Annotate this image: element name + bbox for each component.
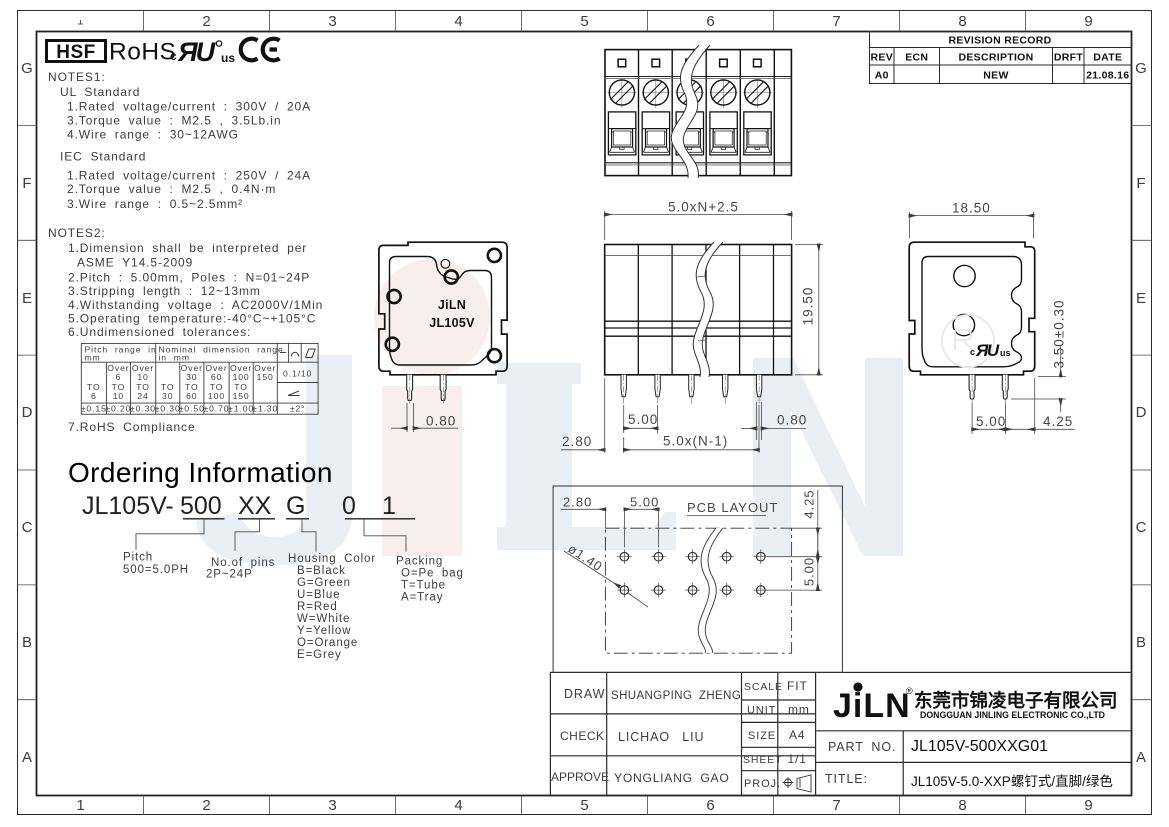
svg-text:±0.30: ±0.30 bbox=[130, 404, 156, 414]
svg-text:6: 6 bbox=[706, 13, 714, 30]
svg-text:DESCRIPTION: DESCRIPTION bbox=[958, 52, 1033, 64]
svg-text:RoHS: RoHS bbox=[109, 39, 176, 66]
svg-text:C: C bbox=[1136, 519, 1147, 536]
svg-text:8: 8 bbox=[958, 797, 966, 814]
svg-text:±2°: ±2° bbox=[290, 404, 306, 414]
svg-text:5.Operating temperature:-40°C~: 5.Operating temperature:-40°C~+105°C bbox=[68, 312, 316, 326]
svg-text:1.Rated voltage/current : 300V: 1.Rated voltage/current : 300V / 20A bbox=[67, 100, 311, 114]
svg-text:5.00: 5.00 bbox=[976, 414, 1006, 429]
svg-text:E=Grey: E=Grey bbox=[297, 649, 342, 661]
svg-text:4: 4 bbox=[454, 797, 462, 814]
svg-text:E: E bbox=[22, 290, 32, 307]
svg-text:TITLE:: TITLE: bbox=[825, 772, 868, 786]
svg-text:2.80: 2.80 bbox=[562, 434, 592, 449]
svg-text:2: 2 bbox=[202, 13, 210, 30]
svg-text:JL105V-: JL105V- bbox=[82, 492, 174, 520]
svg-text:DRFT: DRFT bbox=[1054, 52, 1083, 64]
svg-text:5.00: 5.00 bbox=[628, 412, 658, 427]
svg-text:E: E bbox=[1136, 290, 1146, 307]
svg-text:c: c bbox=[170, 49, 177, 63]
svg-text:6: 6 bbox=[91, 391, 97, 401]
svg-text:mm: mm bbox=[85, 353, 101, 363]
svg-text:7.RoHS Compliance: 7.RoHS Compliance bbox=[68, 420, 196, 434]
svg-text:60: 60 bbox=[211, 372, 222, 382]
svg-text:5.00: 5.00 bbox=[630, 495, 659, 510]
svg-text:FIT: FIT bbox=[787, 679, 808, 693]
svg-text:0.80: 0.80 bbox=[426, 414, 456, 429]
svg-text:REV: REV bbox=[871, 52, 894, 64]
svg-text:9: 9 bbox=[1084, 797, 1092, 814]
svg-text:1: 1 bbox=[76, 797, 84, 814]
svg-text:Ordering Information: Ordering Information bbox=[68, 457, 333, 488]
svg-text:JiLN: JiLN bbox=[438, 298, 466, 312]
svg-text:UNIT: UNIT bbox=[747, 705, 776, 717]
svg-text:UL Standard: UL Standard bbox=[60, 85, 140, 99]
svg-text:0.1/10: 0.1/10 bbox=[283, 369, 312, 379]
svg-text:3.50±0.30: 3.50±0.30 bbox=[1052, 300, 1067, 369]
svg-text:O=Pe bag: O=Pe bag bbox=[401, 568, 464, 580]
svg-text:HSF: HSF bbox=[56, 42, 96, 63]
svg-text:SHUANGPING ZHENG: SHUANGPING ZHENG bbox=[611, 690, 741, 702]
svg-text:1.Rated voltage/current : 250V: 1.Rated voltage/current : 250V / 24A bbox=[67, 169, 311, 183]
svg-text:LICHAO LIU: LICHAO LIU bbox=[618, 730, 704, 744]
svg-text:G: G bbox=[286, 492, 305, 520]
svg-text:SHEET: SHEET bbox=[743, 754, 783, 766]
svg-text:NOTES1:: NOTES1: bbox=[48, 70, 106, 84]
svg-text:A4: A4 bbox=[789, 728, 805, 742]
svg-text:G: G bbox=[1135, 60, 1147, 77]
svg-text:D: D bbox=[1136, 404, 1147, 421]
svg-text:5.0x(N-1): 5.0x(N-1) bbox=[663, 434, 728, 449]
svg-text:No.of pins: No.of pins bbox=[211, 557, 275, 569]
svg-text:mm: mm bbox=[788, 703, 810, 717]
svg-text:in mm: in mm bbox=[159, 353, 190, 363]
svg-text:3.Wire range : 0.5~2.5mm²: 3.Wire range : 0.5~2.5mm² bbox=[67, 197, 243, 211]
svg-text:30: 30 bbox=[162, 391, 173, 401]
svg-text:0: 0 bbox=[342, 492, 356, 520]
svg-text:D: D bbox=[22, 404, 33, 421]
svg-text:2.Torque value : M2.5 , 0.4N·m: 2.Torque value : M2.5 , 0.4N·m bbox=[67, 182, 276, 196]
svg-text:W=White: W=White bbox=[297, 613, 350, 625]
svg-text:PROJ.: PROJ. bbox=[744, 778, 781, 790]
svg-text:JL105V: JL105V bbox=[429, 316, 475, 330]
svg-text:500=5.0PH: 500=5.0PH bbox=[123, 564, 189, 576]
svg-text:±0.50: ±0.50 bbox=[179, 404, 205, 414]
svg-text:B: B bbox=[1136, 634, 1146, 651]
svg-text:1: 1 bbox=[382, 492, 396, 520]
svg-text:8: 8 bbox=[958, 13, 966, 30]
svg-text:c: c bbox=[970, 347, 975, 357]
svg-text:T=Tube: T=Tube bbox=[401, 580, 446, 592]
svg-text:60: 60 bbox=[186, 391, 197, 401]
svg-text:DONGGUAN JINLING ELECTRONIC CO: DONGGUAN JINLING ELECTRONIC CO.,LTD bbox=[920, 710, 1105, 720]
svg-text:±0.20: ±0.20 bbox=[105, 404, 131, 414]
svg-text:5: 5 bbox=[580, 797, 588, 814]
svg-text:10: 10 bbox=[113, 391, 124, 401]
svg-text:4.25: 4.25 bbox=[802, 489, 817, 518]
svg-text:东莞市锦凌电子有限公司: 东莞市锦凌电子有限公司 bbox=[914, 690, 1118, 711]
svg-text:A0: A0 bbox=[875, 70, 889, 82]
svg-text:R=Red: R=Red bbox=[297, 601, 338, 613]
svg-text:ЯU: ЯU bbox=[177, 37, 217, 67]
svg-text:19.50: 19.50 bbox=[801, 287, 816, 326]
svg-text:5: 5 bbox=[580, 13, 588, 30]
svg-text:1/1: 1/1 bbox=[788, 752, 807, 766]
svg-text:F: F bbox=[1136, 175, 1145, 192]
svg-text:±1.00: ±1.00 bbox=[228, 404, 254, 414]
svg-text:Y=Yellow: Y=Yellow bbox=[297, 625, 351, 637]
svg-text:±0.30: ±0.30 bbox=[155, 404, 181, 414]
svg-text:NEW: NEW bbox=[983, 70, 1008, 82]
svg-text:3: 3 bbox=[328, 797, 336, 814]
svg-text:2.80: 2.80 bbox=[563, 495, 592, 510]
svg-text:18.50: 18.50 bbox=[952, 201, 991, 216]
svg-text:APPROVE: APPROVE bbox=[551, 770, 609, 784]
svg-text:9: 9 bbox=[1084, 13, 1092, 30]
svg-text:3: 3 bbox=[328, 13, 336, 30]
svg-text:ASME Y14.5-2009: ASME Y14.5-2009 bbox=[77, 256, 193, 270]
svg-text:100: 100 bbox=[233, 372, 250, 382]
svg-text:IEC Standard: IEC Standard bbox=[60, 150, 146, 164]
svg-text:Housing Color: Housing Color bbox=[288, 553, 376, 565]
svg-text:24: 24 bbox=[137, 391, 148, 401]
svg-text:ECN: ECN bbox=[905, 52, 928, 64]
svg-text:YONGLIANG GAO: YONGLIANG GAO bbox=[614, 771, 730, 785]
svg-text:150: 150 bbox=[233, 391, 250, 401]
svg-text:7: 7 bbox=[832, 797, 840, 814]
svg-text:A: A bbox=[22, 749, 32, 766]
svg-text:6: 6 bbox=[706, 797, 714, 814]
svg-text:JiLN: JiLN bbox=[833, 687, 911, 725]
svg-text:6: 6 bbox=[116, 372, 122, 382]
svg-text:4.Wire range : 30~12AWG: 4.Wire range : 30~12AWG bbox=[67, 128, 239, 142]
svg-text:3.Stripping length : 12~13mm: 3.Stripping length : 12~13mm bbox=[68, 284, 261, 298]
svg-text:SCALE: SCALE bbox=[744, 681, 783, 693]
svg-text:A: A bbox=[1136, 749, 1146, 766]
svg-text:JL105V-500XXG01: JL105V-500XXG01 bbox=[911, 738, 1048, 755]
svg-text:30: 30 bbox=[186, 372, 197, 382]
svg-text:A=Tray: A=Tray bbox=[401, 592, 443, 604]
svg-text:O=Orange: O=Orange bbox=[297, 637, 358, 649]
svg-text:2.Pitch : 5.00mm, Poles : N=01: 2.Pitch : 5.00mm, Poles : N=01~24P bbox=[68, 271, 310, 285]
svg-text:DATE: DATE bbox=[1093, 52, 1122, 64]
svg-text:±0.70: ±0.70 bbox=[204, 404, 230, 414]
svg-text:5.0xN+2.5: 5.0xN+2.5 bbox=[668, 200, 739, 215]
svg-text:REVISION RECORD: REVISION RECORD bbox=[948, 35, 1051, 47]
svg-text:2P~24P: 2P~24P bbox=[206, 569, 253, 581]
svg-text:U=Blue: U=Blue bbox=[297, 589, 340, 601]
svg-text:JL105V-5.0-XXP螺钉式/直脚/绿色: JL105V-5.0-XXP螺钉式/直脚/绿色 bbox=[911, 773, 1113, 789]
svg-text:CHECK: CHECK bbox=[560, 729, 605, 743]
svg-text:ЯU: ЯU bbox=[975, 341, 1000, 360]
svg-text:G: G bbox=[21, 60, 33, 77]
svg-text:NOTES2:: NOTES2: bbox=[48, 226, 106, 240]
svg-text:±0.15: ±0.15 bbox=[81, 404, 107, 414]
svg-text:PCB LAYOUT: PCB LAYOUT bbox=[687, 500, 778, 515]
svg-text:21.08.16: 21.08.16 bbox=[1086, 70, 1129, 82]
svg-text:3.Torque value : M2.5 , 3.5Lb.: 3.Torque value : M2.5 , 3.5Lb.in bbox=[67, 114, 281, 128]
svg-text:®: ® bbox=[906, 686, 913, 696]
svg-text:150: 150 bbox=[257, 372, 274, 382]
svg-text:us: us bbox=[221, 51, 235, 65]
svg-text:G=Green: G=Green bbox=[297, 577, 351, 589]
svg-text:C: C bbox=[22, 519, 33, 536]
svg-text:Pitch: Pitch bbox=[123, 552, 153, 564]
svg-text:5.00: 5.00 bbox=[802, 557, 817, 586]
svg-text:B: B bbox=[22, 634, 32, 651]
svg-text:us: us bbox=[1000, 348, 1011, 358]
svg-text:1.Dimension shall be interpret: 1.Dimension shall be interpreted per bbox=[68, 241, 307, 255]
svg-text:XX: XX bbox=[238, 492, 272, 520]
svg-text:2: 2 bbox=[202, 797, 210, 814]
svg-text:10: 10 bbox=[137, 372, 148, 382]
svg-text:4.25: 4.25 bbox=[1043, 414, 1073, 429]
svg-text:0.80: 0.80 bbox=[777, 413, 807, 428]
svg-text:F: F bbox=[22, 175, 31, 192]
svg-text:500: 500 bbox=[180, 492, 222, 520]
svg-text:7: 7 bbox=[832, 13, 840, 30]
svg-text:PART NO.: PART NO. bbox=[828, 740, 896, 754]
svg-text:4: 4 bbox=[454, 13, 462, 30]
svg-text:100: 100 bbox=[208, 391, 225, 401]
svg-text:6.Undimensioned tolerances:: 6.Undimensioned tolerances: bbox=[68, 325, 251, 339]
svg-text:Packing: Packing bbox=[396, 556, 443, 568]
svg-text:DRAW: DRAW bbox=[564, 687, 605, 701]
svg-text:±1.30: ±1.30 bbox=[252, 404, 278, 414]
svg-text:4.Withstanding voltage : AC200: 4.Withstanding voltage : AC2000V/1Min bbox=[68, 298, 323, 312]
svg-text:B=Black: B=Black bbox=[297, 565, 346, 577]
svg-text:SIZE: SIZE bbox=[748, 730, 776, 742]
